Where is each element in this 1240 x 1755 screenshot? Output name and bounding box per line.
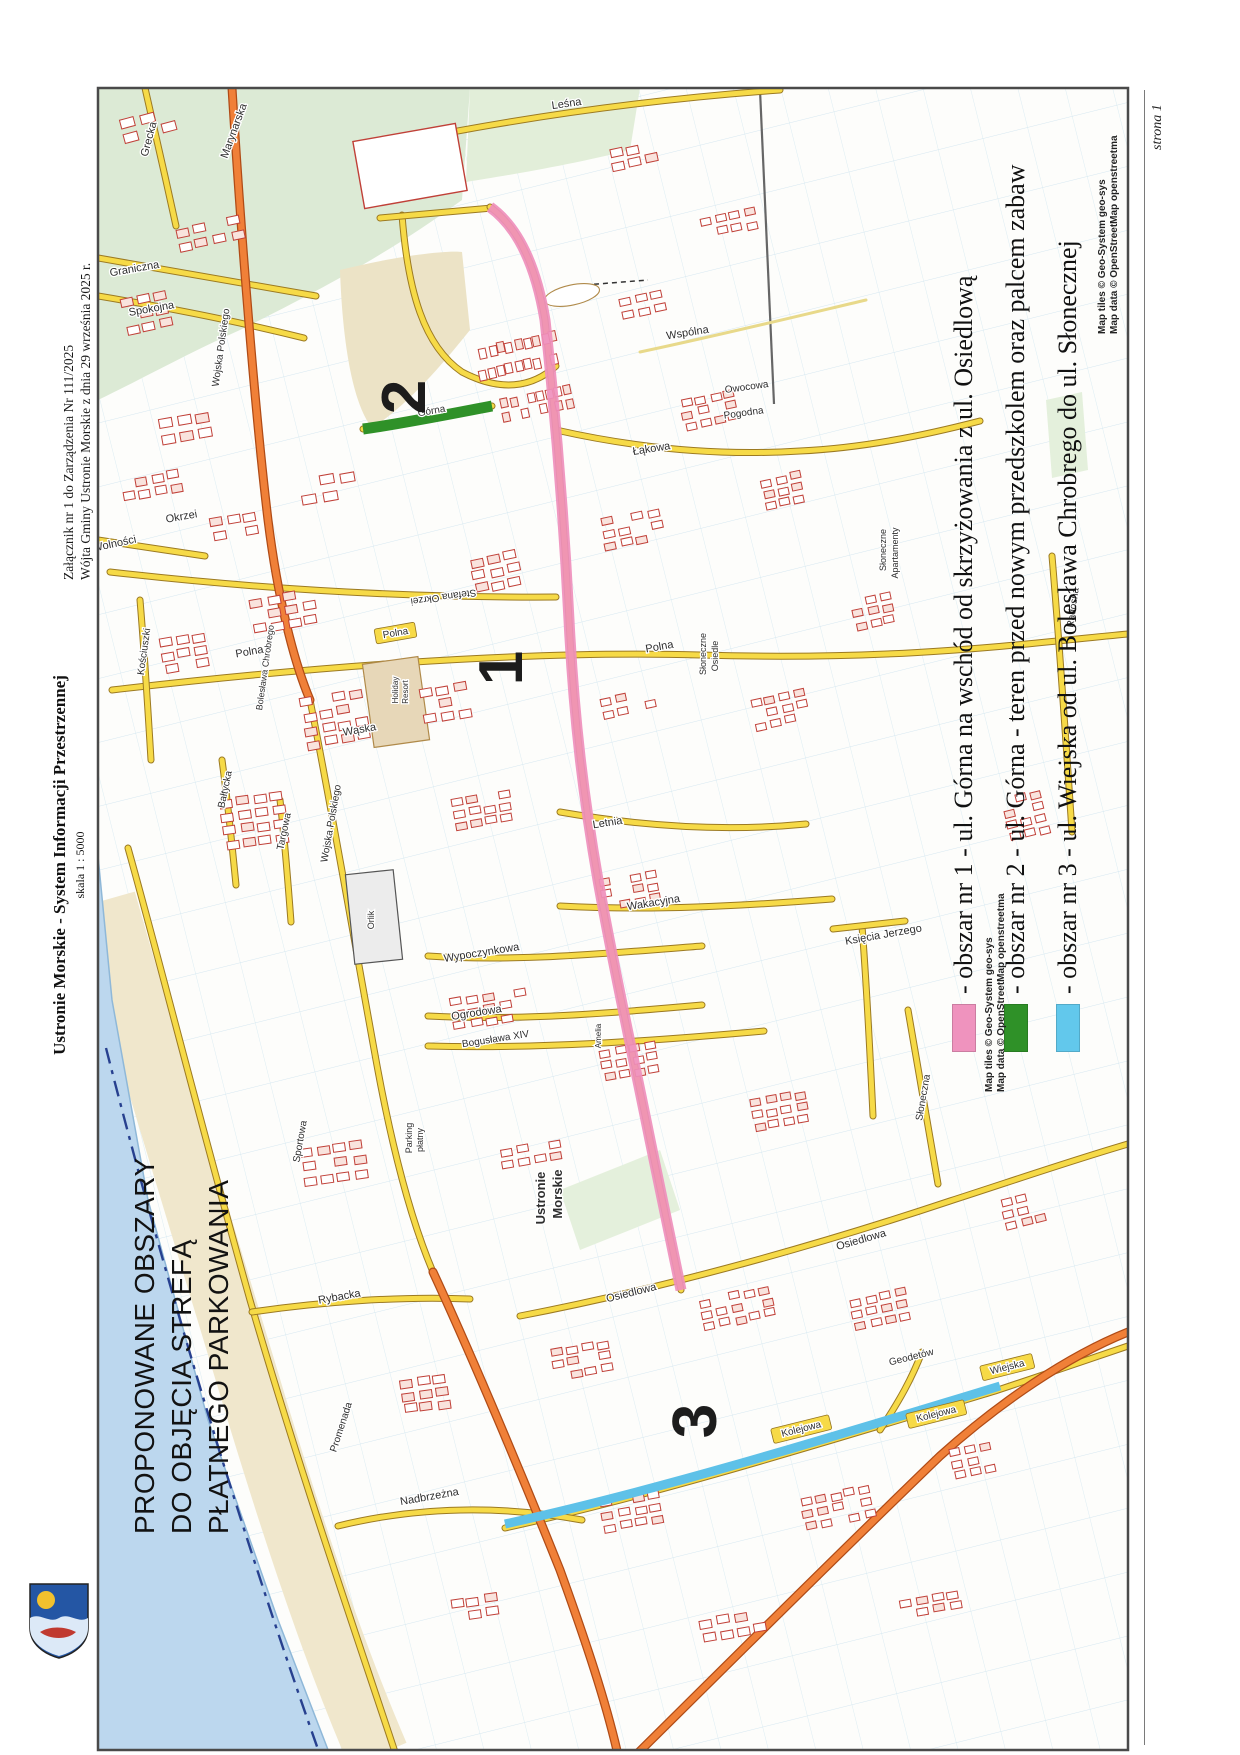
map-source-subtitle: Ustronie Morskie - System Informacji Prz… — [50, 635, 88, 1095]
street-label: Resort — [401, 679, 410, 703]
sun-icon — [37, 1591, 55, 1609]
scanned-map-page: GreckaMarynarskaGranicznaSpokojnaWojska … — [0, 0, 1240, 1755]
ustronie-morskie-crest — [30, 1584, 88, 1658]
page-number: strona 1 — [1150, 104, 1166, 150]
street-label: Morskie — [550, 1169, 565, 1218]
title-line-2: DO OBJĘCIA STREFĄ — [163, 1014, 200, 1534]
footer-rule — [1144, 90, 1145, 1745]
svg-text:Amelia: Amelia — [594, 1023, 603, 1048]
legend-entry-3: - obszar nr 3 - ul. Wiejska od ul. Boles… — [1042, 67, 1094, 1052]
legend-label-1: - obszar nr 1 - ul. Górna na wschód od s… — [949, 276, 979, 994]
svg-text:Osiedle: Osiedle — [710, 641, 720, 672]
street-label: płatny — [415, 1127, 425, 1152]
area3-swatch — [1056, 1004, 1080, 1052]
title-line-1: PROPONOWANE OBSZARY — [126, 1014, 163, 1534]
street-label: Amelia — [594, 1023, 603, 1048]
legend: - obszar nr 1 - ul. Górna na wschód od s… — [938, 67, 1094, 1052]
street-label: Osiedle — [710, 641, 720, 672]
attribution-data: Map data © OpenStreetMap openstreetma — [996, 893, 1008, 1092]
street-label: Apartamenty — [890, 527, 900, 579]
attribution-tiles: Map tiles © Geo-System geo-sys — [984, 893, 996, 1092]
svg-text:płatny: płatny — [415, 1127, 425, 1152]
svg-text:Holiday: Holiday — [391, 677, 400, 704]
svg-text:Apartamenty: Apartamenty — [890, 527, 900, 579]
svg-text:Orlik: Orlik — [366, 910, 376, 929]
svg-text:Resort: Resort — [401, 679, 410, 703]
map-attribution-top: Map tiles © Geo-System geo-sys Map data … — [1097, 135, 1121, 334]
attachment-header: Załącznik nr 1 do Zarządzenia Nr 111/202… — [60, 60, 94, 580]
svg-text:Ustronie: Ustronie — [533, 1172, 548, 1225]
area-number: 1 — [467, 651, 536, 685]
street-label: Holiday — [391, 677, 400, 704]
area-number: 3 — [661, 1404, 730, 1438]
map-attribution-bottom: Map tiles © Geo-System geo-sys Map data … — [984, 893, 1008, 1092]
attribution-data: Map data © OpenStreetMap openstreetma — [1109, 135, 1121, 334]
area-number: 2 — [370, 380, 439, 414]
street-label: Parking — [404, 1123, 414, 1154]
title-line-3: PŁATNEGO PARKOWANIA — [200, 1014, 237, 1534]
legend-entry-1: - obszar nr 1 - ul. Górna na wschód od s… — [938, 67, 990, 1052]
sip-title: Ustronie Morskie - System Informacji Prz… — [50, 635, 70, 1095]
header-line-2: Wójta Gminy Ustronie Morskie z dnia 29 w… — [77, 60, 94, 580]
area1-swatch — [952, 1004, 976, 1052]
street-label: Słoneczne — [698, 633, 708, 675]
svg-text:Parking: Parking — [404, 1123, 414, 1154]
street-label: Orlik — [366, 910, 376, 929]
map-scale: skala 1 : 5000 — [73, 635, 88, 1095]
street-label: Słoneczne — [878, 529, 888, 571]
document-title: PROPONOWANE OBSZARY DO OBJĘCIA STREFĄ PŁ… — [126, 1014, 237, 1534]
attribution-tiles: Map tiles © Geo-System geo-sys — [1097, 135, 1109, 334]
svg-text:Słoneczne: Słoneczne — [878, 529, 888, 571]
svg-text:Słoneczne: Słoneczne — [698, 633, 708, 675]
header-line-1: Załącznik nr 1 do Zarządzenia Nr 111/202… — [60, 60, 77, 580]
legend-label-3: - obszar nr 3 - ul. Wiejska od ul. Boles… — [1053, 240, 1083, 994]
legend-label-2: - obszar nr 2 - ul. Górna - teren przed … — [1001, 165, 1031, 994]
svg-text:Morskie: Morskie — [550, 1169, 565, 1218]
street-label: Ustronie — [533, 1172, 548, 1225]
